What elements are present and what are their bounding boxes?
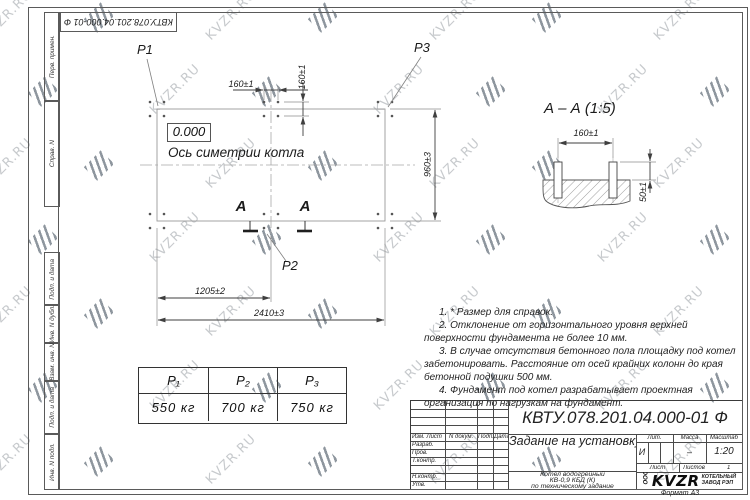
company-prefix: ООО (643, 477, 649, 484)
kvzr-logo-text: KVZR (652, 472, 700, 489)
dim-bolt-x: 160±1 (222, 79, 260, 89)
load-point-p1-label: P1 (137, 42, 153, 57)
row-tkontr: Т.контр. (412, 458, 436, 464)
row-prov: Пров. (412, 450, 428, 456)
note-item: 3. В случае отсутствия бетонного пола пл… (424, 345, 737, 384)
load-table: P₁ P₂ P₃ 550 кг 700 кг 750 кг (138, 367, 347, 424)
change-col-podp: Подп. (478, 434, 493, 440)
sheets-value: 1 (727, 465, 730, 471)
company-logo: ООО KVZR КОТЕЛЬНЫЙ ЗАВОД РЭП (637, 472, 742, 489)
document-title: Задание на установку фундамента (509, 435, 636, 471)
top-designation-text: КВТУ.078.201.04.000-01 Ф (64, 17, 173, 27)
company-name: КОТЕЛЬНЫЙ ЗАВОД РЭП (702, 475, 736, 486)
change-col-izm-list: Изм. Лист (412, 434, 445, 440)
product-description: Котел водогрейный КВ-0,9 КБД (К) по техн… (509, 471, 636, 490)
row-razrab: Разраб. (412, 442, 434, 448)
sheets-label: Листов (683, 465, 705, 471)
drawing-sheet: KVZR.RUKVZR.RUKVZR.RUKVZR.RUKVZR.RUKVZR.… (0, 0, 750, 500)
load-point-p2-label: P2 (282, 258, 298, 273)
scale-value: 1:20 (706, 446, 742, 457)
product-line: по техническому задание (509, 484, 636, 490)
lit-label: Лит. (636, 435, 673, 441)
boiler-axis-label: Ось симетрии котла (168, 145, 304, 160)
lit-value: И (636, 447, 648, 457)
load-table-value-p1: 550 кг (139, 393, 208, 421)
row-utv: Утв. (412, 482, 426, 488)
elevation-mark: 0.000 (167, 123, 211, 142)
load-table-header-p3: P₃ (277, 368, 346, 393)
technical-notes: 1. * Размер для справок. 2. Отклонение о… (424, 306, 737, 410)
change-col-ndokum: N докум. (449, 434, 477, 440)
change-col-data: Дата (494, 434, 508, 440)
mass-label: Масса (673, 435, 706, 441)
company-name-line: ЗАВОД РЭП (702, 481, 736, 487)
row-nkontr: Н.контр. (412, 474, 437, 480)
title-block: Изм. Лист N докум. Подп. Дата Разраб. Пр… (410, 400, 742, 489)
dim-foundation-width: 960±3 (423, 147, 434, 183)
load-point-p3-label: P3 (414, 40, 430, 55)
top-designation-stamp: КВТУ.078.201.04.000-01 Ф (60, 12, 177, 32)
load-table-value-p3: 750 кг (277, 393, 346, 421)
note-item: 2. Отклонение от горизонтального уровня … (424, 319, 737, 345)
dim-section-bolt-height: 50±1 (638, 176, 648, 208)
document-designation: КВТУ.078.201.04.000-01 Ф (508, 401, 742, 434)
scale-label: Масштаб (706, 435, 742, 441)
dim-bolt-y: 160±1 (297, 61, 307, 93)
section-letter-right: А (295, 198, 315, 215)
dim-section-bolt-spacing: 160±1 (566, 128, 606, 138)
dim-total-length: 2410±3 (243, 308, 295, 318)
dim-half-length: 1205±2 (184, 286, 236, 296)
load-table-header-p1: P₁ (139, 368, 208, 393)
mass-value: – (673, 447, 706, 457)
note-item: 1. * Размер для справок. (424, 306, 737, 319)
section-letter-left: А (231, 198, 251, 215)
sheet-label: Лист (636, 465, 679, 471)
load-table-value-p2: 700 кг (208, 393, 277, 421)
format-note: Формат А3 (630, 490, 730, 497)
load-table-header-p2: P₂ (208, 368, 277, 393)
section-title: А – А (1:5) (544, 100, 616, 117)
